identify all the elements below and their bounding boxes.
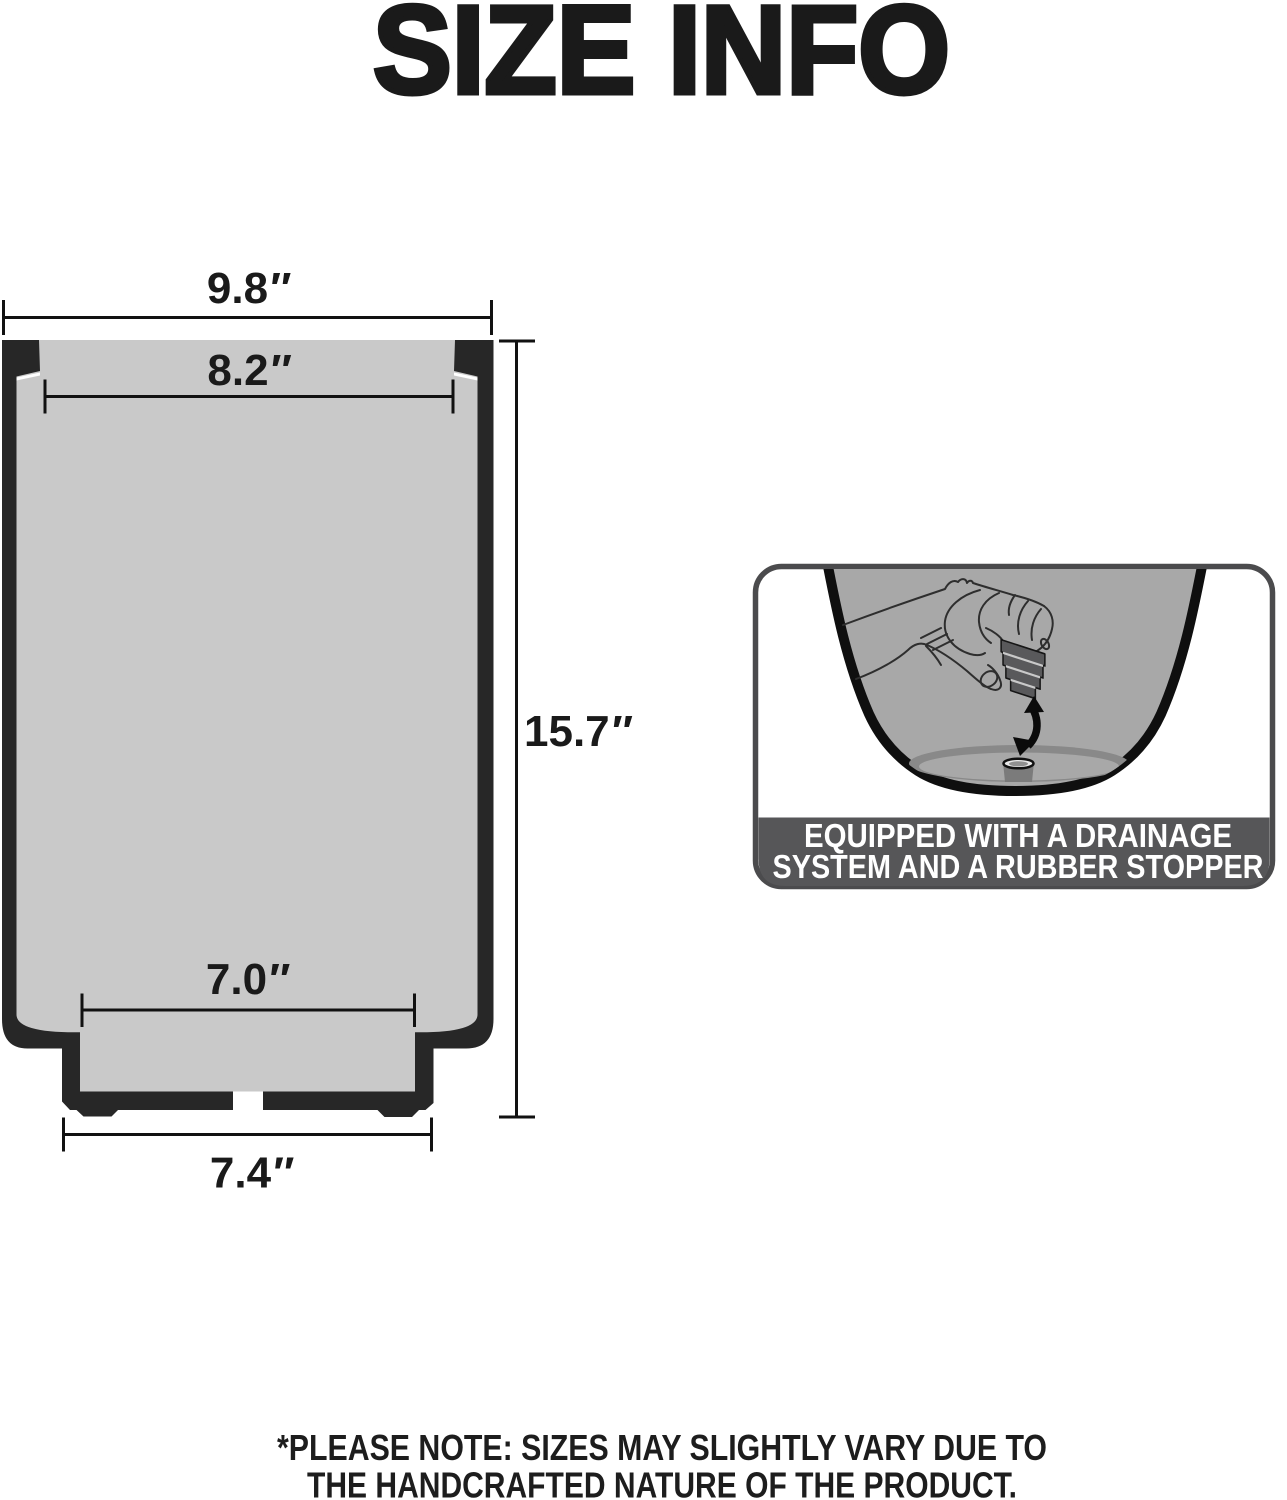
svg-text:7.0″: 7.0″ [206, 955, 290, 1004]
svg-text:SIZE INFO: SIZE INFO [373, 0, 950, 120]
svg-text:*PLEASE NOTE: SIZES MAY SLIGHT: *PLEASE NOTE: SIZES MAY SLIGHTLY VARY DU… [277, 1427, 1047, 1468]
svg-text:7.4″: 7.4″ [210, 1149, 294, 1198]
svg-text:9.8″: 9.8″ [207, 264, 291, 313]
svg-text:8.2″: 8.2″ [207, 346, 291, 395]
svg-text:SYSTEM AND A RUBBER STOPPER: SYSTEM AND A RUBBER STOPPER [773, 848, 1264, 885]
svg-text:THE HANDCRAFTED NATURE OF THE: THE HANDCRAFTED NATURE OF THE PRODUCT. [307, 1465, 1017, 1500]
svg-text:15.7″: 15.7″ [524, 707, 633, 756]
